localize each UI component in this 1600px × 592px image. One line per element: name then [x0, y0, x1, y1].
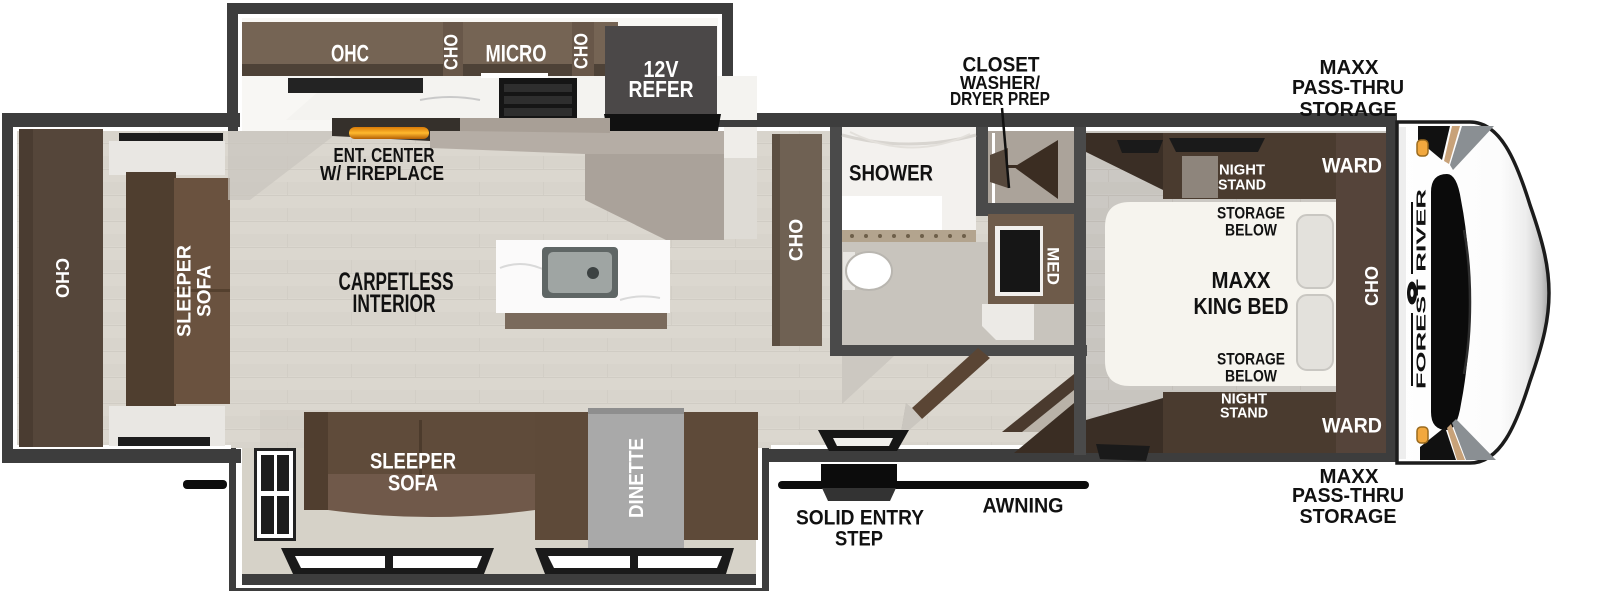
svg-text:MAXX: MAXX — [1212, 267, 1272, 293]
svg-text:OHC: OHC — [331, 41, 369, 68]
svg-text:BELOW: BELOW — [1225, 367, 1278, 386]
svg-text:SOLID ENTRY: SOLID ENTRY — [796, 507, 924, 530]
svg-text:CHO: CHO — [52, 258, 72, 298]
svg-text:WARD: WARD — [1322, 155, 1382, 178]
svg-text:STEP: STEP — [835, 528, 883, 551]
svg-text:SOFA: SOFA — [388, 471, 438, 496]
svg-text:KING BED: KING BED — [1194, 293, 1289, 319]
svg-text:CHO: CHO — [787, 219, 808, 261]
svg-text:MED: MED — [1044, 247, 1063, 285]
svg-text:CHO: CHO — [572, 33, 593, 69]
svg-text:REFER: REFER — [629, 76, 694, 102]
svg-text:SOFA: SOFA — [195, 265, 216, 317]
svg-text:WARD: WARD — [1322, 415, 1382, 438]
svg-text:CHO: CHO — [1362, 266, 1382, 306]
svg-text:SLEEPER: SLEEPER — [175, 245, 196, 337]
svg-text:INTERIOR: INTERIOR — [353, 290, 436, 318]
svg-text:PASS-THRU: PASS-THRU — [1292, 77, 1404, 99]
svg-text:SHOWER: SHOWER — [849, 161, 933, 186]
svg-text:CHO: CHO — [442, 34, 463, 70]
svg-text:STORAGE: STORAGE — [1300, 99, 1397, 121]
svg-text:BELOW: BELOW — [1225, 221, 1278, 240]
svg-text:STAND: STAND — [1220, 405, 1268, 422]
svg-text:DINETTE: DINETTE — [626, 438, 648, 518]
svg-text:AWNING: AWNING — [983, 495, 1064, 518]
svg-text:STAND: STAND — [1218, 177, 1266, 194]
svg-text:FOREST RIVER: FOREST RIVER — [1414, 188, 1429, 389]
svg-text:MAXX: MAXX — [1320, 57, 1380, 79]
svg-text:PASS-THRU: PASS-THRU — [1292, 485, 1404, 507]
svg-text:STORAGE: STORAGE — [1300, 506, 1397, 528]
svg-text:DRYER PREP: DRYER PREP — [950, 89, 1050, 109]
svg-text:W/ FIREPLACE: W/ FIREPLACE — [320, 163, 444, 185]
svg-text:MICRO: MICRO — [486, 41, 547, 68]
